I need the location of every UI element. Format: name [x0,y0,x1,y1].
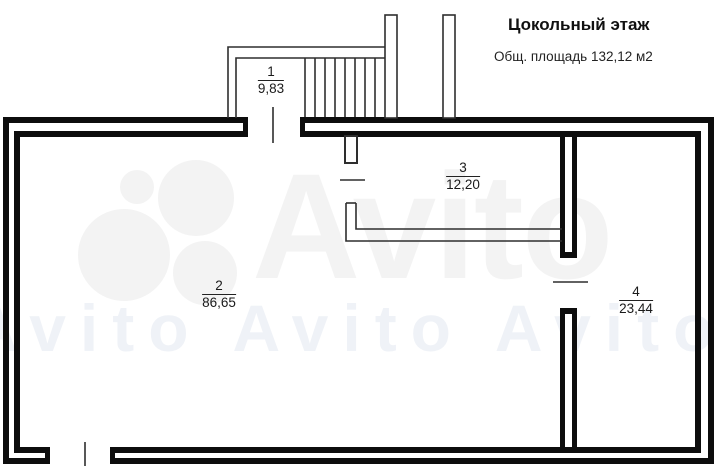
room-label-3: 3 12,20 [446,161,480,192]
room-2-number: 2 [202,279,236,295]
room-label-2: 2 86,65 [202,279,236,310]
floorplan-image: Avito Avito Avito Avito Avito Avito [0,0,720,466]
room-4-number: 4 [619,285,653,301]
room-4-area: 23,44 [619,301,653,316]
room-1-area: 9,83 [258,81,284,96]
plan-title: Цокольный этаж [508,15,649,35]
room-3-area: 12,20 [446,177,480,192]
room-3-number: 3 [446,161,480,177]
room-label-1: 1 9,83 [258,65,284,96]
room-label-4: 4 23,44 [619,285,653,316]
room-2-area: 86,65 [202,295,236,310]
plan-subtitle: Общ. площадь 132,12 м2 [494,49,653,64]
text-layer: Цокольный этаж Общ. площадь 132,12 м2 1 … [0,0,720,466]
room-1-number: 1 [258,65,284,81]
